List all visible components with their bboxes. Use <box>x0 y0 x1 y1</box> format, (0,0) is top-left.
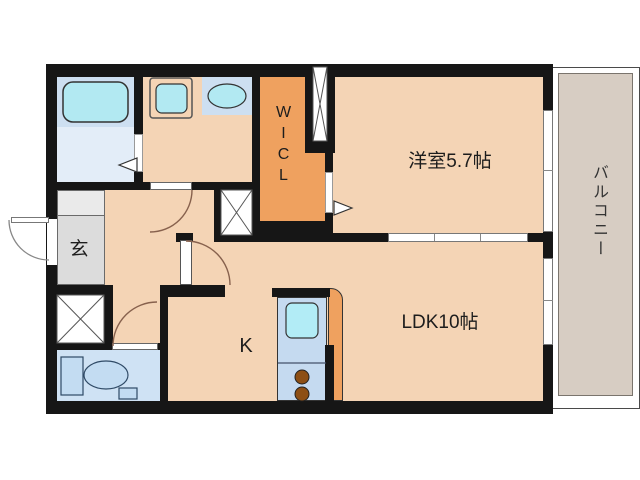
toilet-bowl-icon <box>84 361 128 389</box>
entry-door-arc <box>9 220 49 260</box>
kitchen-sink-icon <box>286 303 318 338</box>
toilet-tank-icon <box>61 357 83 395</box>
fixture-layer <box>0 0 640 480</box>
stove-burner-icon <box>295 370 309 384</box>
shoe-storage-icon <box>57 295 104 343</box>
bedroom-label: 洋室5.7帖 <box>360 146 540 173</box>
wicl-folding-door-arrow-icon <box>334 201 352 215</box>
balcony-label: バルコニー <box>586 164 610 259</box>
ldk-label: LDK10帖 <box>350 307 530 334</box>
washing-machine-icon <box>156 84 187 113</box>
genkan-label: 玄 <box>66 234 92 261</box>
hall-shaft-icon <box>221 190 252 235</box>
washbasin-icon <box>208 84 246 108</box>
washroom-door-arc <box>150 190 192 232</box>
toilet-door-arc <box>113 302 157 346</box>
ldk-door-arc <box>186 241 230 285</box>
bathroom-folding-door-arrow-icon <box>119 158 137 172</box>
floorplan: 洋室5.7帖 LDK10帖 K 玄 WICL バルコニー <box>0 0 640 480</box>
bathtub-icon <box>63 82 128 122</box>
pipe-shaft-icon <box>313 67 327 141</box>
wicl-label: WICL <box>271 104 295 188</box>
toilet-seat-icon <box>119 388 137 399</box>
kitchen-label: K <box>230 335 262 358</box>
stove-burner-icon <box>295 387 309 401</box>
